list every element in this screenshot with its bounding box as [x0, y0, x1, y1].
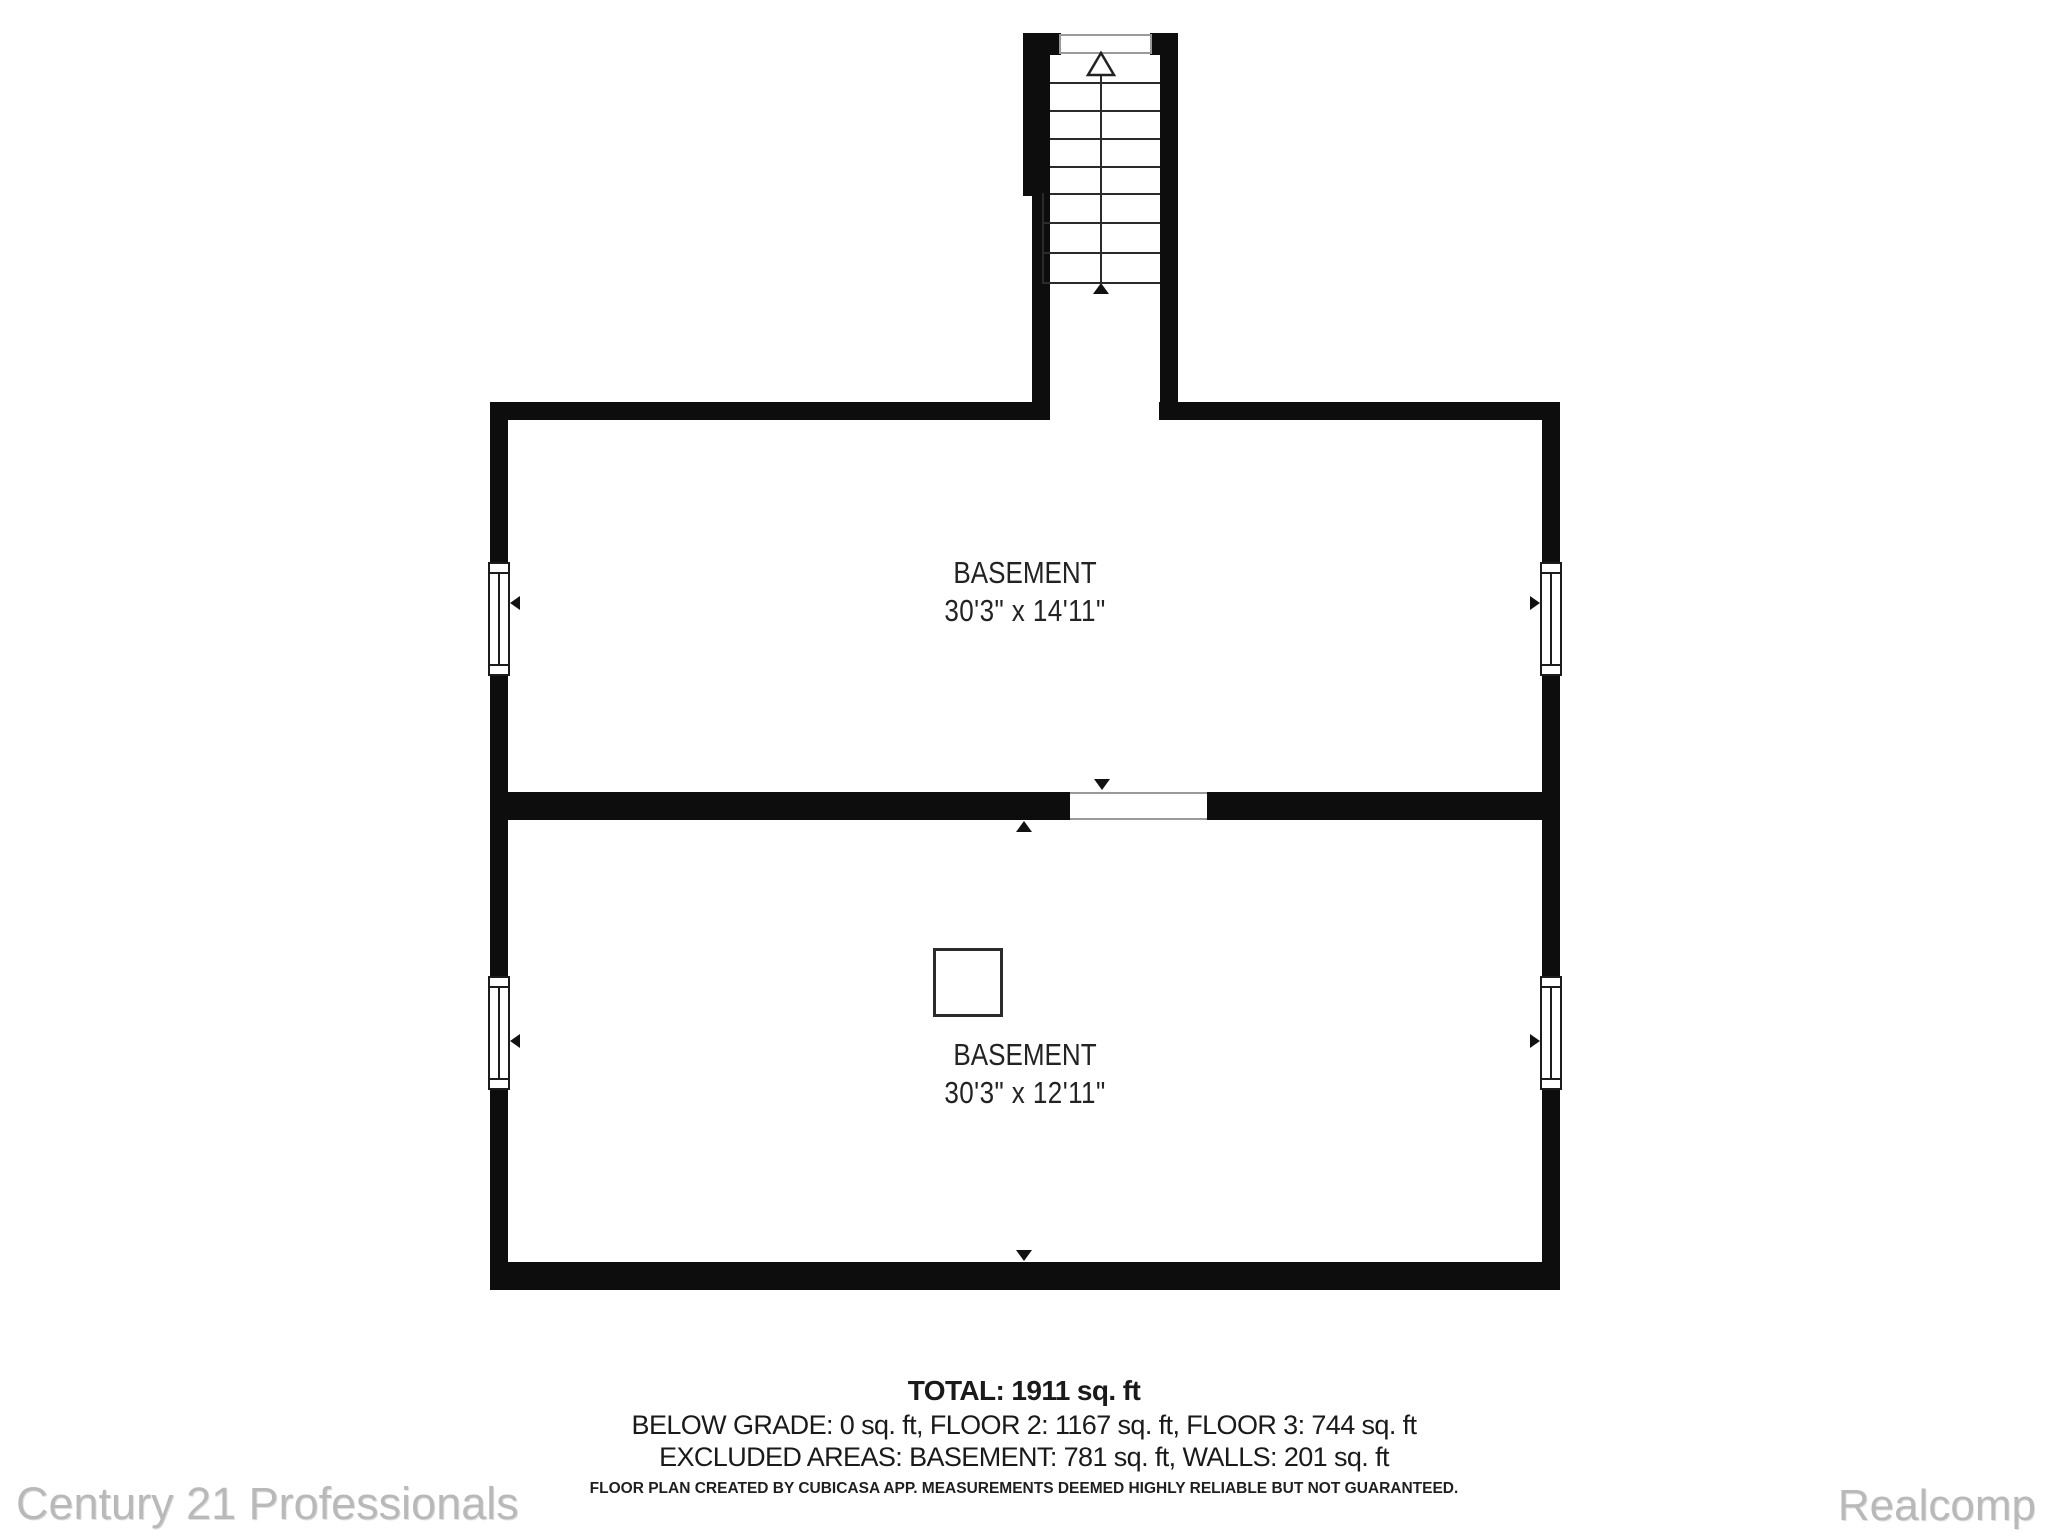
stair-step — [1050, 166, 1160, 168]
area-summary-total: TOTAL: 1911 sq. ft — [0, 1374, 2048, 1408]
stair-step — [1050, 138, 1160, 140]
wall-top-right-segment — [1159, 402, 1560, 420]
passage-arrow-up-icon — [1016, 821, 1032, 832]
column-symbol — [933, 948, 1003, 1017]
floor-plan-page: BASEMENT 30'3" x 14'11" BASEMENT 30'3" x… — [0, 0, 2048, 1536]
room-label-lower: BASEMENT 30'3" x 12'11" — [591, 1036, 1460, 1112]
window-cap — [490, 1078, 508, 1080]
window-arrow-icon — [510, 596, 520, 610]
room-dimensions: 30'3" x 14'11" — [591, 592, 1460, 630]
window-pane-line — [498, 988, 500, 1078]
wall-middle-left-segment — [490, 792, 1070, 820]
room-label-upper: BASEMENT 30'3" x 14'11" — [591, 554, 1460, 630]
stair-wall-left-upper — [1023, 33, 1050, 196]
room-name: BASEMENT — [591, 554, 1460, 592]
stair-wall-left-lower — [1032, 196, 1050, 420]
stair-wall-right — [1160, 33, 1178, 420]
wall-bottom — [490, 1262, 1560, 1290]
watermark-right: Realcomp — [1838, 1481, 2036, 1531]
area-summary-floors: BELOW GRADE: 0 sq. ft, FLOOR 2: 1167 sq.… — [0, 1408, 2048, 1442]
area-summary-excluded: EXCLUDED AREAS: BASEMENT: 781 sq. ft, WA… — [0, 1440, 2048, 1474]
window-upper-left — [488, 562, 510, 676]
wall-left — [490, 402, 508, 1290]
window-cap — [490, 664, 508, 666]
stair-step — [1050, 110, 1160, 112]
wall-right — [1542, 402, 1560, 1290]
window-lower-left — [488, 976, 510, 1090]
window-lower-right — [1540, 976, 1562, 1090]
stair-step — [1050, 193, 1160, 195]
bottom-entry-arrow-icon — [1016, 1250, 1032, 1261]
window-pane-line — [1550, 574, 1552, 664]
window-arrow-icon — [1530, 596, 1540, 610]
window-arrow-icon — [510, 1034, 520, 1048]
room-dimensions: 30'3" x 12'11" — [591, 1074, 1460, 1112]
window-arrow-icon — [1530, 1034, 1540, 1048]
window-cap — [1542, 1078, 1560, 1080]
stair-steps-left-edge — [1042, 193, 1044, 282]
door-opening — [1070, 792, 1207, 820]
door-entry-arrow-icon — [1094, 779, 1110, 790]
window-upper-right — [1540, 562, 1562, 676]
window-cap — [1542, 664, 1560, 666]
stair-up-arrow-icon — [1085, 50, 1117, 78]
window-pane-line — [498, 574, 500, 664]
window-pane-line — [1550, 988, 1552, 1078]
wall-top-left-segment — [490, 402, 1042, 420]
stair-start-marker-icon — [1093, 283, 1109, 294]
wall-middle-right-segment — [1207, 792, 1560, 820]
stair-direction-line — [1100, 74, 1102, 283]
stair-step — [1050, 82, 1160, 84]
room-name: BASEMENT — [591, 1036, 1460, 1074]
stair-wall-right-cap — [1150, 33, 1178, 55]
watermark-left: Century 21 Professionals — [16, 1478, 519, 1530]
